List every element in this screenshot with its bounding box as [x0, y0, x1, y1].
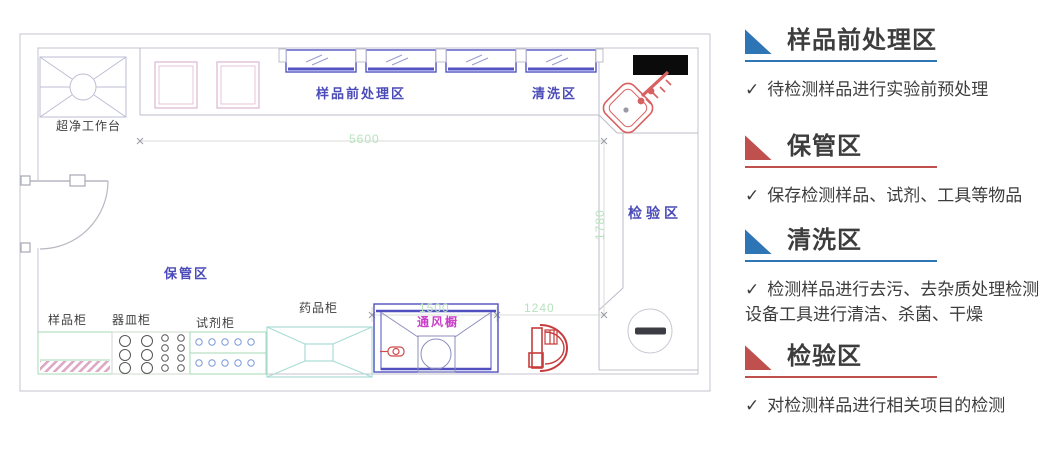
label-reagent-cabinet: 试剂柜	[196, 317, 235, 329]
triangle-marker-icon	[745, 345, 772, 370]
section-storage: 保管区 ✓保存检测样品、试剂、工具等物品	[728, 134, 1050, 209]
section-bullet: ✓保存检测样品、试剂、工具等物品	[745, 184, 1045, 209]
sample-cabinet-symbol	[38, 332, 112, 374]
section-bullet: ✓对检测样品进行相关项目的检测	[745, 394, 1045, 419]
triangle-marker-icon	[745, 229, 772, 254]
dimension-lines	[140, 141, 604, 322]
black-counter-block	[633, 55, 688, 75]
red-fixture-icon	[380, 347, 404, 356]
check-icon: ✓	[745, 80, 759, 99]
dimension-top: 5600	[349, 133, 380, 145]
section-underline	[745, 376, 937, 378]
zone-label-storage: 保管区	[164, 267, 209, 280]
check-icon: ✓	[745, 280, 759, 299]
vessel-cabinet-symbol	[112, 332, 190, 374]
section-underline	[745, 260, 937, 262]
floor-plan: 样品前处理区 清洗区 检验区 保管区 超净工作台 样品柜 器皿柜 试剂柜 药品柜…	[0, 0, 720, 452]
section-underline	[745, 60, 937, 62]
triangle-marker-icon	[745, 135, 772, 160]
red-equipment-symbol	[529, 325, 567, 371]
section-bullet: ✓待检测样品进行实验前预处理	[745, 78, 1045, 103]
triangle-marker-icon	[745, 29, 772, 54]
zone-label-inspection: 检验区	[628, 206, 682, 220]
section-bullet: ✓检测样品进行去污、去杂质处理检测设备工具进行清洁、杀菌、干燥	[745, 278, 1045, 327]
check-icon: ✓	[745, 396, 759, 415]
dimension-ticks	[137, 138, 607, 318]
section-inspection: 检验区 ✓对检测样品进行相关项目的检测	[728, 344, 1050, 419]
zone-label-cleaning: 清洗区	[532, 87, 577, 100]
section-underline	[745, 166, 937, 168]
section-title: 样品前处理区	[787, 28, 937, 54]
label-fume-hood: 通风橱	[417, 316, 459, 328]
window-symbols	[279, 49, 603, 72]
sink-basins	[155, 62, 259, 108]
section-pretreatment: 样品前处理区 ✓待检测样品进行实验前预处理	[728, 28, 1050, 103]
label-medicine-cabinet: 药品柜	[299, 302, 338, 314]
door-symbol	[21, 175, 108, 252]
window-4	[526, 50, 596, 72]
window-2	[366, 50, 436, 72]
window-3	[446, 50, 516, 72]
floor-plan-drawing	[0, 0, 720, 452]
legend-panel: 样品前处理区 ✓待检测样品进行实验前预处理 保管区 ✓保存检测样品、试剂、工具等…	[728, 0, 1050, 452]
window-1	[286, 50, 356, 72]
lab-layout-slide: 样品前处理区 清洗区 检验区 保管区 超净工作台 样品柜 器皿柜 试剂柜 药品柜…	[0, 0, 1050, 452]
section-cleaning: 清洗区 ✓检测样品进行去污、去杂质处理检测设备工具进行清洁、杀菌、干燥	[728, 228, 1050, 328]
medicine-cabinet-symbol	[267, 327, 372, 377]
section-title: 检验区	[787, 344, 862, 370]
check-icon: ✓	[745, 186, 759, 205]
zone-label-pretreatment: 样品前处理区	[316, 87, 406, 100]
stamp-circle	[628, 309, 672, 353]
dimension-right: 1780	[594, 209, 606, 240]
section-title: 保管区	[787, 134, 862, 160]
label-clean-bench: 超净工作台	[56, 120, 121, 132]
dimension-fume-hood: 1500	[419, 302, 450, 314]
clean-bench-symbol	[40, 57, 126, 117]
reagent-cabinet-symbol	[190, 332, 266, 374]
label-sample-cabinet: 样品柜	[48, 314, 87, 326]
stamp-text-illegible	[635, 328, 666, 335]
label-vessel-cabinet: 器皿柜	[112, 314, 151, 326]
section-title: 清洗区	[787, 228, 862, 254]
dimension-right-section: 1240	[524, 302, 555, 314]
